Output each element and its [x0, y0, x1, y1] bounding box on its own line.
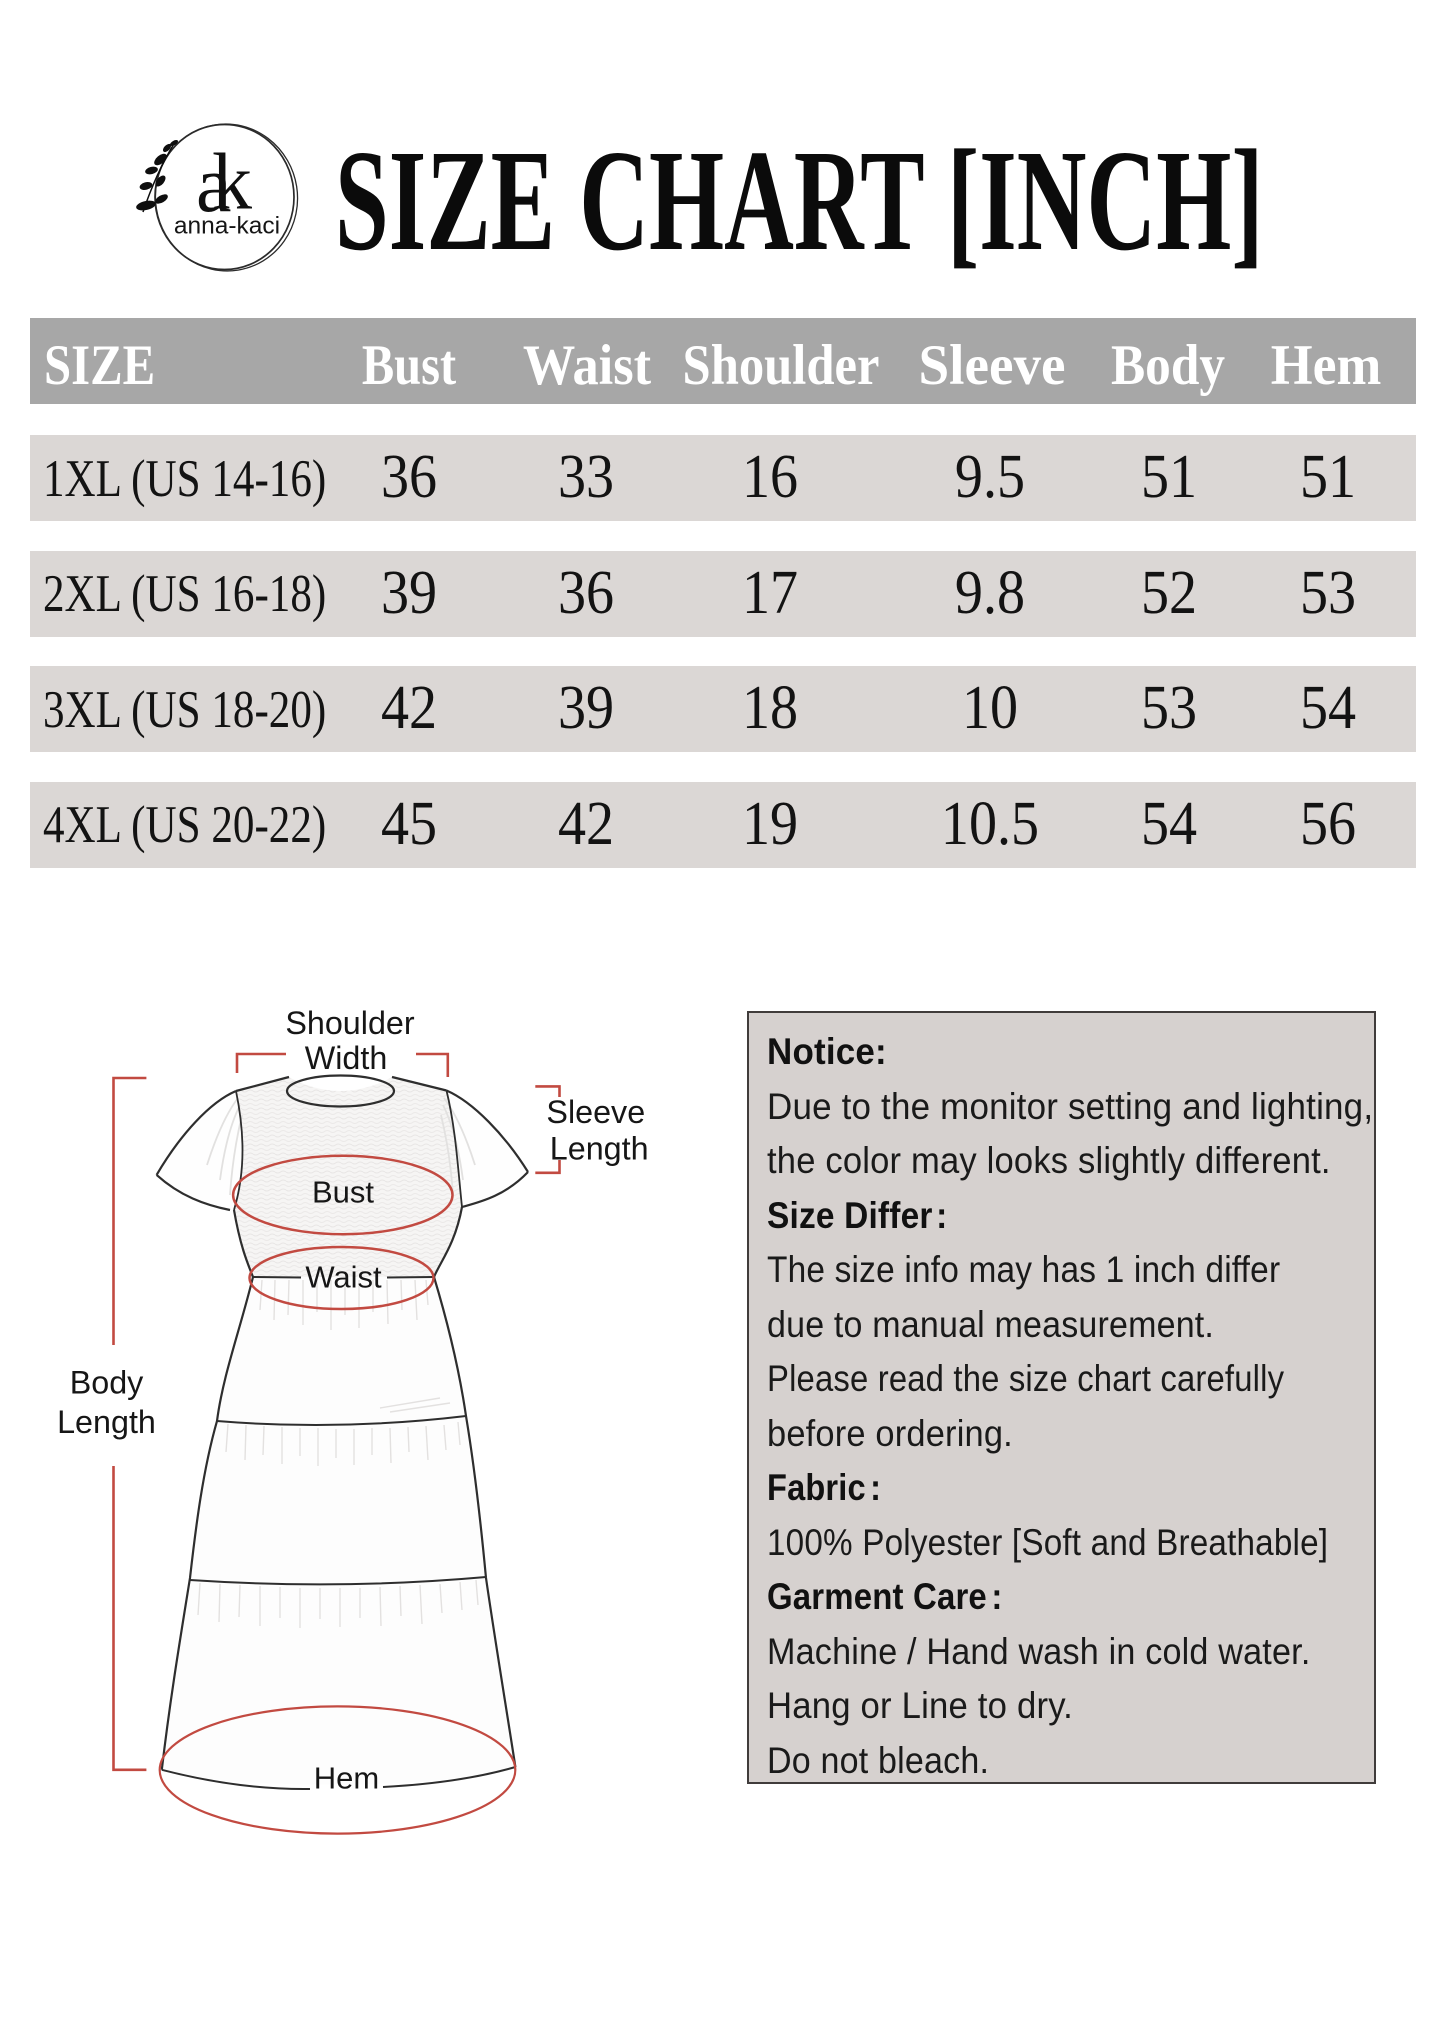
svg-text:Width: Width	[305, 1040, 388, 1076]
svg-text:Length: Length	[57, 1404, 156, 1440]
svg-text:anna-kaci: anna-kaci	[174, 213, 280, 240]
svg-text:Body: Body	[70, 1364, 144, 1400]
svg-text:Sleeve: Sleeve	[546, 1094, 645, 1130]
svg-text:Length: Length	[550, 1131, 649, 1167]
svg-text:Waist: Waist	[305, 1260, 382, 1295]
svg-text:Shoulder: Shoulder	[285, 1005, 415, 1041]
svg-text:Bust: Bust	[312, 1174, 374, 1209]
svg-text:Hem: Hem	[314, 1761, 379, 1796]
